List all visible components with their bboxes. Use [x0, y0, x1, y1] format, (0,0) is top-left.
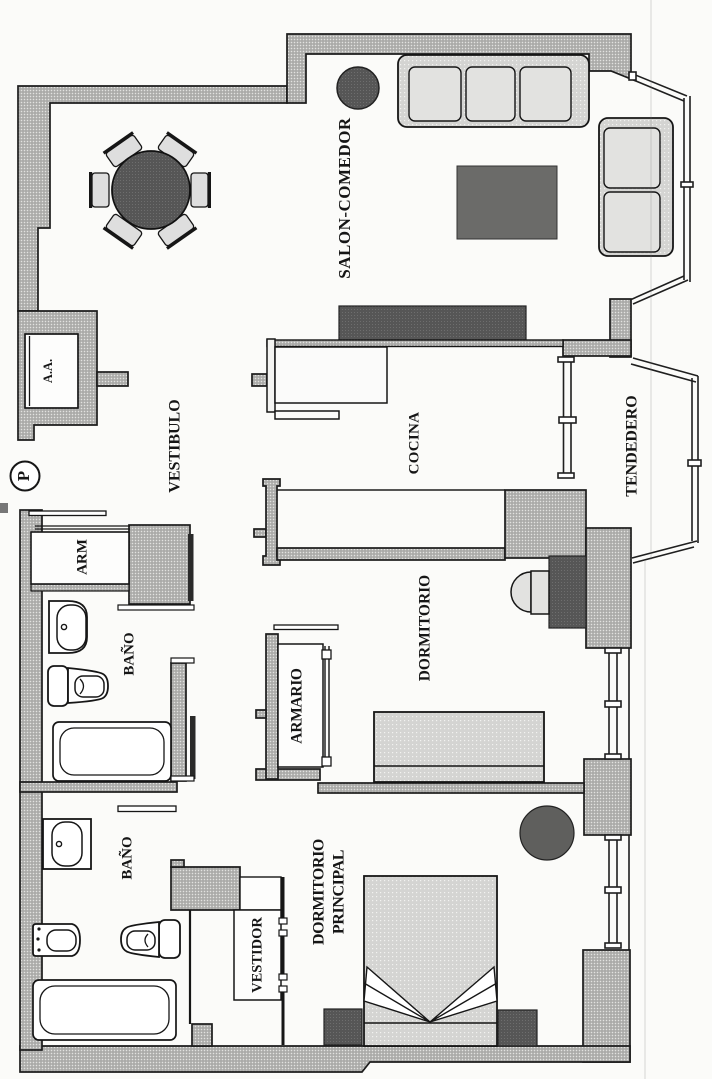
- svg-text:ARM: ARM: [74, 539, 90, 575]
- svg-text:P: P: [14, 471, 33, 481]
- svg-text:BAÑO: BAÑO: [119, 632, 137, 675]
- svg-text:VESTIDOR: VESTIDOR: [249, 917, 265, 993]
- svg-text:TENDEDERO: TENDEDERO: [624, 395, 641, 496]
- svg-text:ARMARIO: ARMARIO: [289, 668, 306, 744]
- svg-text:BAÑO: BAÑO: [117, 836, 135, 879]
- svg-text:A.A.: A.A.: [41, 359, 55, 383]
- svg-text:SALON-COMEDOR: SALON-COMEDOR: [335, 117, 354, 279]
- svg-text:PRINCIPAL: PRINCIPAL: [331, 850, 348, 934]
- svg-text:DORMITORIO: DORMITORIO: [311, 839, 328, 945]
- svg-text:VESTIBULO: VESTIBULO: [167, 399, 184, 492]
- svg-text:COCINA: COCINA: [406, 412, 422, 475]
- svg-text:DORMITORIO: DORMITORIO: [417, 575, 434, 682]
